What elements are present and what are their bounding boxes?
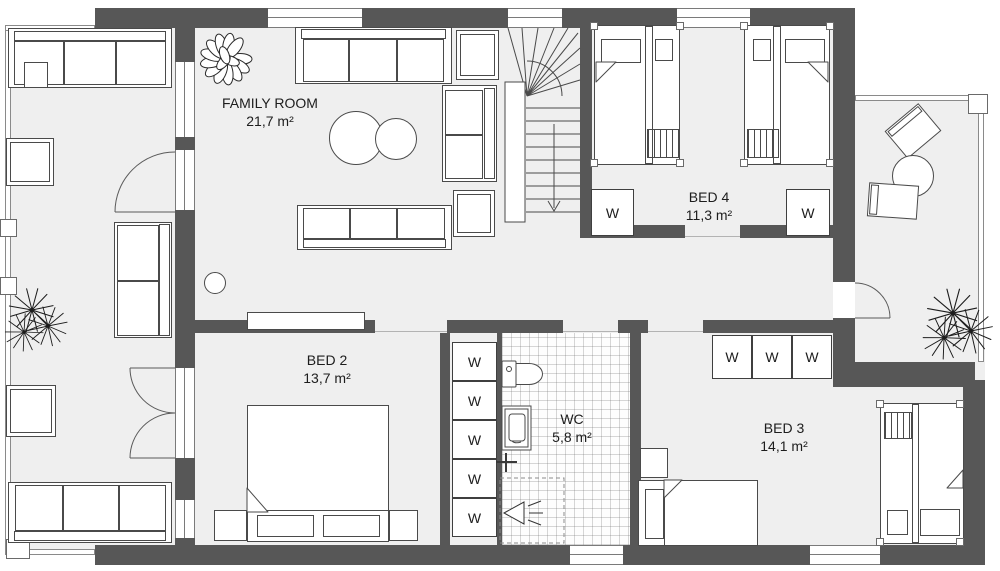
wardrobe-label: W (805, 349, 818, 365)
bed-post (826, 159, 834, 167)
balcony-french-door-opening (175, 368, 195, 458)
window (508, 8, 562, 28)
wall-bottom (623, 545, 810, 565)
terrace-chair (867, 182, 919, 219)
wardrobe-label: W (606, 205, 619, 221)
room-label-bed4: BED 4 11,3 m² (639, 188, 779, 225)
bed-post (956, 538, 964, 546)
pillow (887, 510, 908, 535)
wall-right (833, 318, 855, 387)
wardrobe-label: W (725, 349, 738, 365)
wardrobe-label: W (468, 354, 481, 370)
wardrobe: W (452, 498, 497, 537)
wardrobe: W (452, 342, 497, 381)
wardrobe: W (712, 335, 752, 379)
railing-post (0, 219, 17, 237)
bunk-ladder (647, 129, 679, 158)
room-name: BED 4 (639, 188, 779, 206)
double-bed-duvet (247, 405, 389, 512)
wall-bed2-right (440, 333, 450, 545)
wardrobe-label: W (468, 510, 481, 526)
wall-left (175, 8, 195, 62)
wall-right (833, 238, 855, 282)
nightstand (214, 510, 247, 541)
armchair-cushion (445, 90, 483, 135)
side-table (456, 30, 499, 80)
door-threshold (563, 331, 618, 332)
wardrobe: W (752, 335, 792, 379)
room-label-bed3: BED 3 14,1 m² (714, 419, 854, 456)
wardrobe: W (792, 335, 832, 379)
sofa-cushion (349, 39, 397, 82)
sofa-cushion (350, 208, 397, 239)
room-name: BED 3 (714, 419, 854, 437)
bed-post (876, 538, 884, 546)
sofa-cushion (116, 41, 166, 85)
single-bed (638, 480, 758, 546)
pillow (257, 515, 314, 537)
railing-post (0, 277, 17, 295)
room-name: WC (512, 410, 632, 428)
room-name: BED 2 (257, 351, 397, 369)
wall-terrace-bottom (855, 362, 975, 387)
wardrobe-label: W (468, 432, 481, 448)
wall-south-corridor (703, 320, 833, 333)
room-area: 5,8 m² (512, 428, 632, 446)
side-table (453, 190, 495, 237)
sofa-cushion (63, 485, 119, 531)
wall-bottom (880, 545, 985, 565)
wardrobe: W (786, 189, 830, 236)
room-label-wc: WC 5,8 m² (512, 410, 632, 447)
bed-post (956, 400, 964, 408)
balcony-door-opening (175, 150, 195, 210)
bunk-bed-left (594, 25, 680, 165)
bed-post (590, 159, 598, 167)
sofa-back (14, 531, 166, 541)
wardrobe-label: W (801, 205, 814, 221)
table-top (10, 142, 50, 182)
room-area: 21,7 m² (190, 112, 350, 130)
balcony-side-table (24, 62, 48, 88)
bed-post (826, 22, 834, 30)
terrace-railing-top (855, 95, 984, 101)
bunk-ladder (884, 412, 912, 439)
sofa-cushion (397, 208, 445, 239)
armchair-cushion (445, 135, 483, 179)
bench-back (159, 224, 170, 336)
table-top (10, 389, 52, 433)
table-top (457, 194, 491, 233)
terrace-door-opening (833, 282, 855, 318)
bed-post (676, 159, 684, 167)
nightstand (389, 510, 418, 541)
wardrobe-label: W (468, 471, 481, 487)
bed-post (676, 22, 684, 30)
sideboard (247, 312, 365, 330)
wardrobe-label: W (765, 349, 778, 365)
room-label-bed2: BED 2 13,7 m² (257, 351, 397, 388)
wall-south-corridor (447, 320, 563, 333)
sofa-cushion (303, 39, 349, 82)
coffee-table-small (375, 118, 417, 160)
stool (204, 272, 226, 294)
chair-back (869, 184, 879, 214)
bench-cushion (117, 281, 159, 336)
bed-post (740, 159, 748, 167)
bed-frame-line (664, 481, 665, 545)
room-area: 11,3 m² (639, 206, 779, 224)
wardrobe: W (591, 189, 634, 236)
wall-bottom (95, 545, 570, 565)
bench-cushion (117, 225, 159, 281)
wall-left (175, 458, 195, 500)
sofa-back (14, 31, 166, 41)
table-top (460, 34, 495, 76)
bunk-bed (880, 403, 964, 544)
room-area: 14,1 m² (714, 437, 854, 455)
wardrobe: W (452, 459, 497, 498)
sofa-cushion (64, 41, 116, 85)
sofa-bottom (297, 205, 452, 250)
wall-left (175, 137, 195, 150)
wardrobe: W (452, 381, 497, 420)
balcony-table (6, 138, 54, 186)
room-area: 13,7 m² (257, 369, 397, 387)
sofa-cushion (303, 208, 350, 239)
room-name: FAMILY ROOM (190, 94, 350, 112)
door-threshold (685, 236, 740, 237)
bunk-rail (912, 404, 919, 543)
armchair-back (484, 88, 495, 179)
balcony-sofa-bottom (8, 482, 172, 543)
sofa-cushion (397, 39, 444, 82)
pillow (645, 489, 664, 539)
pillow (323, 515, 380, 537)
sofa-back (303, 239, 446, 248)
room-label-family-room: FAMILY ROOM 21,7 m² (190, 94, 350, 131)
window (570, 545, 623, 565)
pillow (601, 39, 641, 63)
bed-post (876, 400, 884, 408)
pillow (920, 509, 960, 536)
sofa-top (295, 27, 452, 84)
wall-top (362, 8, 508, 28)
wardrobe-label: W (468, 393, 481, 409)
bed-post (740, 22, 748, 30)
bed-post (590, 22, 598, 30)
wall-bed3-right (963, 380, 985, 565)
bunk-bed-right (744, 25, 830, 165)
pillow (785, 39, 825, 63)
armchair (442, 85, 497, 182)
pillow (655, 39, 673, 61)
sofa-cushion (15, 485, 63, 531)
sofa-cushion (119, 485, 166, 531)
balcony-bench (114, 222, 172, 338)
window (268, 8, 362, 28)
wall-wc-left (497, 333, 502, 545)
window (810, 545, 880, 565)
wall-right (833, 8, 855, 238)
sofa-back (301, 29, 446, 39)
wall-south-corridor (618, 320, 648, 333)
terrace-railing-right (978, 95, 984, 362)
door-threshold (648, 331, 703, 332)
balcony-table (6, 385, 56, 437)
wardrobe: W (452, 420, 497, 459)
double-bed-head (247, 510, 389, 542)
nightstand (640, 448, 668, 478)
floor-plan: W W W W W W W W W W (0, 0, 1000, 571)
bunk-ladder (747, 129, 779, 158)
pillow (753, 39, 771, 61)
window (175, 500, 195, 538)
wall-left (175, 210, 195, 368)
railing-post (968, 94, 988, 114)
door-threshold (375, 331, 447, 332)
